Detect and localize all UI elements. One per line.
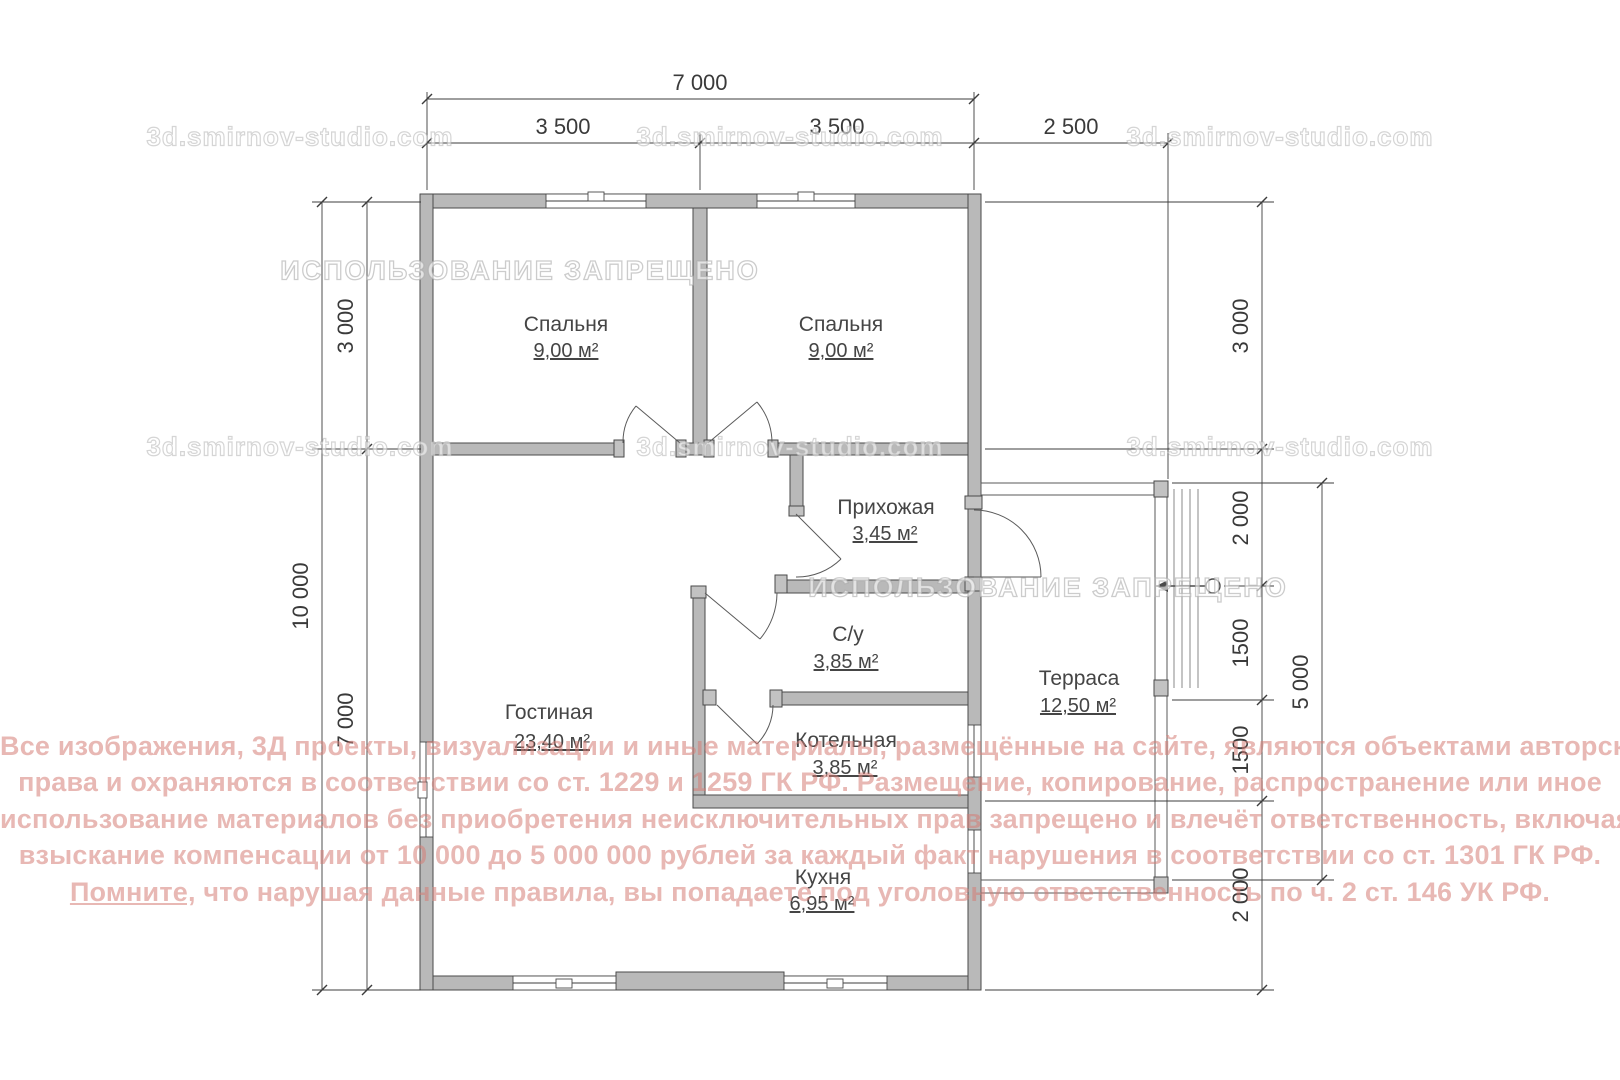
legal-text-line4: взыскание компенсации от 10 000 до 5 000… [0, 840, 1620, 871]
watermark-site: 3d.smirnov-studio.com [146, 432, 453, 463]
room-hallway-name: Прихожая [837, 496, 934, 519]
watermark-banner: ИСПОЛЬЗОВАНИЕ ЗАПРЕЩЕНО [808, 573, 1287, 604]
room-terrace-name: Терраса [1039, 667, 1120, 690]
room-bathroom-area: 3,85 м² [814, 651, 879, 673]
legal-text-line5: Помните, что нарушая данные правила, вы … [0, 877, 1620, 908]
room-bedroom2-area: 9,00 м² [809, 340, 874, 362]
legal-text-line1: Все изображения, 3Д проекты, визуализаци… [0, 731, 1620, 762]
legal-text-line5-lead: Помните, [70, 877, 196, 907]
dim-terrace-side: 5 000 [1288, 654, 1313, 709]
room-hallway-area: 3,45 м² [853, 523, 918, 545]
watermark-site: 3d.smirnov-studio.com [636, 432, 943, 463]
dim-right-3: 1500 [1228, 619, 1253, 668]
watermark-site: 3d.smirnov-studio.com [1126, 432, 1433, 463]
room-bedroom1-area: 9,00 м² [534, 340, 599, 362]
watermark-site: 3d.smirnov-studio.com [146, 122, 453, 153]
room-living-name: Гостиная [505, 701, 593, 724]
floor-plan-drawing: 7 000 3 500 3 500 2 500 10 000 3 000 7 0… [0, 0, 1620, 1080]
room-bedroom2-name: Спальня [799, 313, 883, 336]
legal-text-line3: использование материалов без приобретени… [0, 804, 1620, 835]
legal-text-line5-rest: что нарушая данные правила, вы попадаете… [196, 877, 1550, 907]
room-terrace-area: 12,50 м² [1040, 695, 1116, 717]
watermark-banner: ИСПОЛЬЗОВАНИЕ ЗАПРЕЩЕНО [280, 256, 759, 287]
dim-top-total: 7 000 [672, 70, 727, 95]
watermark-site: 3d.smirnov-studio.com [1126, 122, 1433, 153]
watermark-site: 3d.smirnov-studio.com [636, 122, 943, 153]
floor-plan-sheet: 7 000 3 500 3 500 2 500 10 000 3 000 7 0… [0, 0, 1620, 1080]
room-bathroom-name: С/у [832, 623, 864, 646]
legal-text-line2: права и охраняются в соответствии со ст.… [0, 767, 1620, 798]
dim-left-top: 3 000 [333, 298, 358, 353]
dim-top-terrace: 2 500 [1043, 114, 1098, 139]
dim-right-2: 2 000 [1228, 490, 1253, 545]
dim-right-1: 3 000 [1228, 298, 1253, 353]
dimensions-left: 10 000 3 000 7 000 [288, 197, 421, 995]
dim-left-total: 10 000 [288, 562, 313, 629]
dim-top-left: 3 500 [535, 114, 590, 139]
room-bedroom1-name: Спальня [524, 313, 608, 336]
